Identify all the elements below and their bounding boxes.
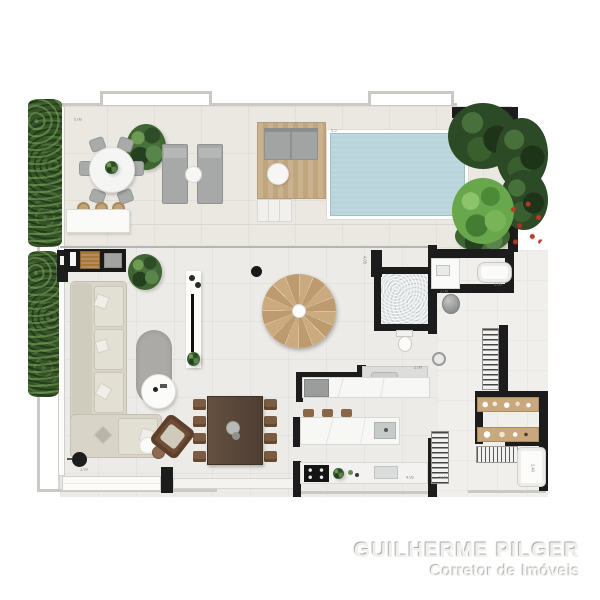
bar-counter bbox=[66, 209, 130, 233]
coffee-table-item bbox=[160, 384, 167, 388]
island-stool bbox=[303, 409, 314, 417]
window-sill-pantry bbox=[468, 490, 546, 493]
dimension-label: 2.40 bbox=[530, 464, 534, 472]
window-dining bbox=[173, 478, 295, 489]
lounger-side-table bbox=[185, 166, 202, 183]
wall-island-end bbox=[293, 417, 300, 447]
staircase-center bbox=[292, 304, 306, 318]
dining-chair bbox=[264, 433, 277, 444]
dimension-label: 4.95 bbox=[406, 476, 414, 480]
swimming-pool bbox=[327, 130, 468, 219]
table-centerpiece-plant bbox=[105, 161, 118, 174]
bath2-sink bbox=[436, 265, 450, 276]
shower-glass bbox=[381, 274, 430, 324]
dimension-label: 5.5 bbox=[331, 129, 337, 133]
daybed-cushion bbox=[291, 131, 318, 160]
dining-chair bbox=[193, 399, 206, 410]
glass-wall-terrace bbox=[60, 246, 430, 248]
speaker bbox=[195, 282, 201, 288]
window-living bbox=[62, 476, 161, 491]
floorplan-canvas: { "watermark": { "title": "GUILHERME PIL… bbox=[0, 0, 600, 600]
coffee-table bbox=[141, 374, 176, 409]
floor-lamp bbox=[72, 452, 87, 467]
pendant-light bbox=[251, 266, 262, 277]
corridor-shelf bbox=[482, 328, 499, 390]
lounger-pillow bbox=[164, 148, 186, 158]
dining-chair bbox=[193, 433, 206, 444]
sideboard-vase bbox=[70, 252, 76, 266]
cooktop bbox=[304, 465, 329, 482]
kitchen-sink bbox=[374, 466, 398, 479]
sideboard-tray bbox=[104, 253, 122, 268]
island-stool bbox=[322, 409, 333, 417]
dimension-label: 2.66 bbox=[494, 283, 502, 287]
drying-rack bbox=[476, 446, 518, 463]
toilet-bowl bbox=[398, 336, 412, 352]
wall-living-window bbox=[161, 467, 173, 493]
floor-lamp-stem bbox=[67, 458, 72, 460]
pantry-shelf bbox=[477, 397, 539, 412]
wall-bath-corner bbox=[371, 250, 382, 277]
watermark: GUILHERME PILGER Corretor de Imóveis bbox=[354, 539, 580, 581]
counter-fruit bbox=[348, 470, 353, 475]
sideboard-basket bbox=[80, 251, 100, 269]
dining-chair bbox=[264, 451, 277, 462]
tv-plant bbox=[187, 352, 200, 366]
dining-chair bbox=[264, 416, 277, 427]
dimension-label: 4.05 bbox=[362, 256, 366, 264]
tv-screen bbox=[191, 294, 194, 352]
bathtub bbox=[477, 262, 512, 283]
dimension-label: 2.08 bbox=[414, 366, 422, 370]
watermark-subtitle: Corretor de Imóveis bbox=[354, 562, 580, 581]
flowering-bush bbox=[452, 178, 514, 244]
dining-chair bbox=[264, 399, 277, 410]
hedge-planter bbox=[28, 99, 62, 247]
wall-bath2-top bbox=[430, 249, 514, 258]
counter-item bbox=[355, 473, 359, 477]
dining-chair bbox=[193, 416, 206, 427]
water-heater bbox=[442, 294, 460, 314]
dimension-label: 5.00 bbox=[74, 118, 82, 122]
potted-plant bbox=[128, 254, 162, 290]
island-stool bbox=[341, 409, 352, 417]
table-centerpiece bbox=[232, 432, 240, 440]
daybed-cushion bbox=[264, 131, 291, 160]
hedge-planter bbox=[28, 251, 59, 397]
wall-shelf-right bbox=[499, 325, 508, 392]
lounger-pillow bbox=[199, 148, 221, 158]
island-faucet bbox=[384, 428, 388, 432]
dimension-label: 2.06 bbox=[440, 290, 448, 294]
pantry-shelf bbox=[477, 427, 539, 442]
deck-steps bbox=[257, 199, 292, 222]
counter-appliance bbox=[304, 379, 329, 397]
floor-drain bbox=[432, 352, 446, 366]
dimension-label: 5.90 bbox=[439, 476, 447, 480]
red-flowers bbox=[505, 196, 547, 250]
parapet-bump bbox=[368, 91, 454, 105]
dining-chair bbox=[193, 451, 206, 462]
dimension-label: 1.50 bbox=[80, 468, 88, 472]
speaker bbox=[189, 275, 195, 281]
window-sill-kitchen bbox=[300, 491, 430, 494]
coffee-table-item bbox=[153, 387, 158, 392]
deck-side-table bbox=[267, 163, 289, 185]
watermark-title: GUILHERME PILGER bbox=[354, 539, 580, 562]
counter-plant bbox=[333, 468, 344, 479]
parapet-bump bbox=[100, 91, 212, 105]
